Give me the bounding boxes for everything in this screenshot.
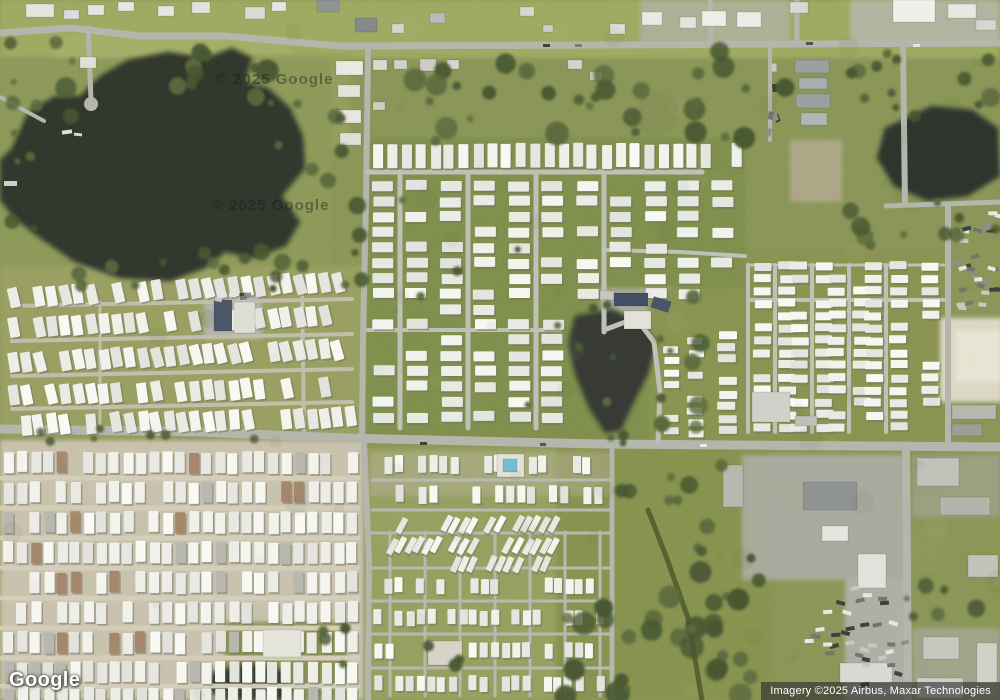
google-logo[interactable]: Google xyxy=(9,669,80,692)
imagery-attribution: Imagery ©2025 Airbus, Maxar Technologies xyxy=(761,682,1000,700)
satellite-map-viewport[interactable]: © 2025 Google© 2025 Google Google Imager… xyxy=(0,0,1000,700)
attribution-text: Imagery ©2025 Airbus, Maxar Technologies xyxy=(770,685,991,697)
noise-overlay xyxy=(0,0,1000,700)
satellite-imagery[interactable]: © 2025 Google© 2025 Google xyxy=(0,0,1000,700)
